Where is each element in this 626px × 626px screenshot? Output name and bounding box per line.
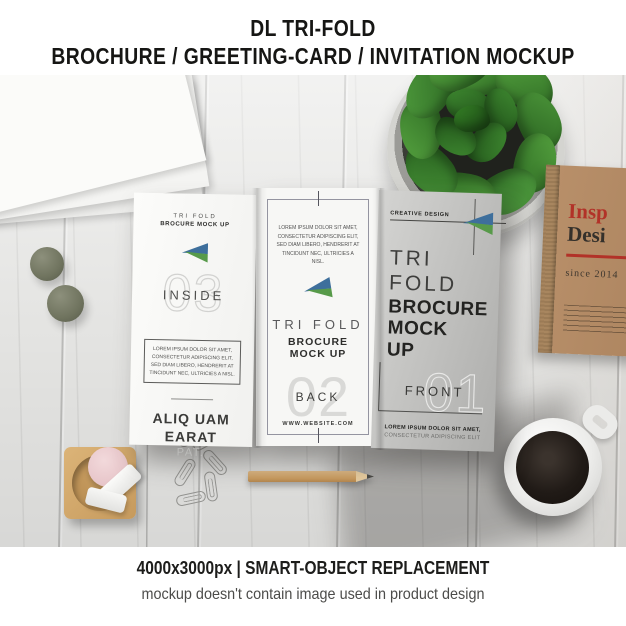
inside-headline: ALIQ UAM EARAT <box>129 409 253 448</box>
front-title-bold-3: UP <box>387 339 487 364</box>
inside-divider <box>171 398 213 400</box>
back-label: BACK <box>268 390 368 404</box>
back-title-bold: BROCURE MOCK UP <box>268 336 368 360</box>
front-title-bold-2: MOCK <box>387 318 487 343</box>
fold-crease <box>252 188 262 448</box>
back-lorem-text: LOREM IPSUM DOLOR SIT AMET, CONSECTETUR … <box>268 200 368 267</box>
mockup-page: DL TRI-FOLD BROCHURE / GREETING-CARD / I… <box>0 0 626 626</box>
pencil-body <box>248 471 356 482</box>
triangle-logo-icon <box>462 212 493 241</box>
basil-leaf <box>454 105 490 132</box>
inside-lorem-box: LOREM IPSUM DOLOR SIT AMET, CONSECTETUR … <box>143 339 241 385</box>
front-title-block: TRI FOLD BROCURE MOCK UP <box>387 246 490 364</box>
notebook-fine-print <box>563 305 626 334</box>
title-line-1: DL TRI-FOLD <box>50 14 576 42</box>
kraft-notebook: Insp Desi since 2014 <box>538 165 626 358</box>
wooden-tray <box>64 447 136 519</box>
front-title-bold-1: BROCURE <box>388 296 488 321</box>
page-footer: 4000x3000px | SMART-OBJECT REPLACEMENT m… <box>0 558 626 604</box>
inside-headline-sub: PAT. <box>129 446 252 460</box>
back-title-small: TRI FOLD <box>268 317 368 332</box>
inside-number-block: 03 INSIDE <box>131 269 255 329</box>
crop-tick-bottom <box>318 428 319 443</box>
brochure-panel-front: CREATIVE DESIGN TRI FOLD BROCURE MOCK UP <box>371 190 502 452</box>
footer-line-2: mockup doesn't contain image used in pro… <box>31 586 594 604</box>
notebook-cover-text: Insp Desi since 2014 <box>563 200 626 335</box>
inside-header-bold: BROCURE MOCK UP <box>133 221 256 229</box>
green-ball <box>47 285 84 322</box>
tri-fold-brochure: TRI FOLD BROCURE MOCK UP 03 INSIDE LOREM… <box>134 188 502 452</box>
title-line-2: BROCHURE / GREETING-CARD / INVITATION MO… <box>50 42 576 70</box>
front-label: FRONT <box>404 383 464 400</box>
triangle-logo-icon <box>267 271 370 312</box>
mockup-photo: Insp Desi since 2014 <box>0 75 626 547</box>
crop-tick-top <box>318 191 319 206</box>
paperclip <box>175 490 207 507</box>
inside-headline-line-1: ALIQ UAM <box>130 409 253 430</box>
notebook-subtitle: since 2014 <box>565 268 626 283</box>
fold-crease <box>375 188 385 450</box>
front-tagline: CREATIVE DESIGN <box>390 210 449 218</box>
front-footer-text: LOREM IPSUM DOLOR SIT AMET, CONSECTETUR … <box>384 424 481 441</box>
notebook-title-line-2: Desi <box>567 222 626 250</box>
brochure-panel-inside: TRI FOLD BROCURE MOCK UP 03 INSIDE LOREM… <box>129 193 257 447</box>
front-number-block: 01 FRONT <box>382 368 489 431</box>
inside-header-small: TRI FOLD <box>134 193 257 221</box>
green-ball <box>30 247 64 281</box>
pencil <box>248 471 378 482</box>
inside-headline-line-2: EARAT <box>129 427 252 448</box>
coffee-surface <box>516 431 589 504</box>
coffee-mug <box>504 418 602 516</box>
pencil-lead <box>367 474 374 479</box>
footer-line-1: 4000x3000px | SMART-OBJECT REPLACEMENT <box>44 558 582 579</box>
brochure-panel-back: LOREM IPSUM DOLOR SIT AMET, CONSECTETUR … <box>256 188 380 446</box>
front-title-thin-1: TRI <box>389 246 489 274</box>
inside-label: INSIDE <box>132 287 255 304</box>
back-website: WWW.WEBSITE.COM <box>268 421 368 427</box>
front-footer-light: CONSECTETUR ADIPISCING ELIT <box>384 432 480 441</box>
front-title-thin-2: FOLD <box>389 271 489 299</box>
back-border-frame: LOREM IPSUM DOLOR SIT AMET, CONSECTETUR … <box>267 199 369 435</box>
paperclip <box>172 457 197 488</box>
page-title: DL TRI-FOLD BROCHURE / GREETING-CARD / I… <box>0 14 626 70</box>
notebook-accent-rule <box>566 254 626 260</box>
